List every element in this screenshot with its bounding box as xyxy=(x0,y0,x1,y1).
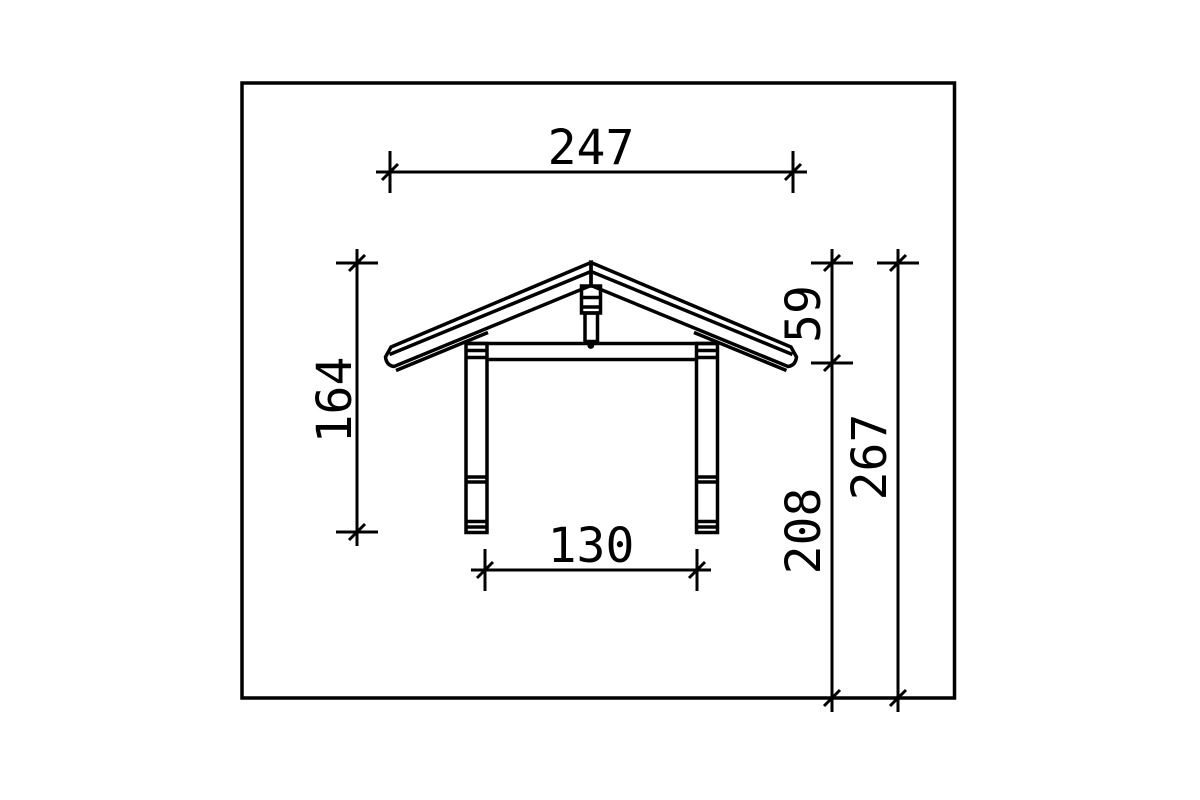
dimension-total-width: 247 xyxy=(376,120,807,193)
dim-label-roof-height: 59 xyxy=(776,285,832,343)
right-post-anchor-lines xyxy=(697,477,718,527)
left-post-lap-lines xyxy=(466,351,487,358)
king-post-stem xyxy=(585,313,598,342)
right-post xyxy=(697,344,718,533)
dim-label-total-width: 247 xyxy=(548,120,635,176)
dim-label-left-height: 164 xyxy=(307,357,363,444)
dimension-left-height: 164 xyxy=(307,249,378,546)
canopy-structure xyxy=(386,263,797,533)
drawing-canvas: 247 164 59 208 267 130 xyxy=(0,0,1200,800)
canopy-elevation-drawing: 247 164 59 208 267 130 xyxy=(0,0,1200,800)
king-post-head-lines xyxy=(582,298,601,308)
dim-label-clear-width: 130 xyxy=(548,518,635,574)
left-post-anchor-lines xyxy=(466,477,487,527)
left-post xyxy=(466,344,487,533)
dimension-clear-width: 130 xyxy=(471,518,711,591)
dim-label-post-height: 208 xyxy=(776,488,832,575)
dim-label-total-height: 267 xyxy=(842,414,898,501)
dimension-total-height: 267 xyxy=(842,249,919,712)
right-post-lap-lines xyxy=(697,351,718,358)
